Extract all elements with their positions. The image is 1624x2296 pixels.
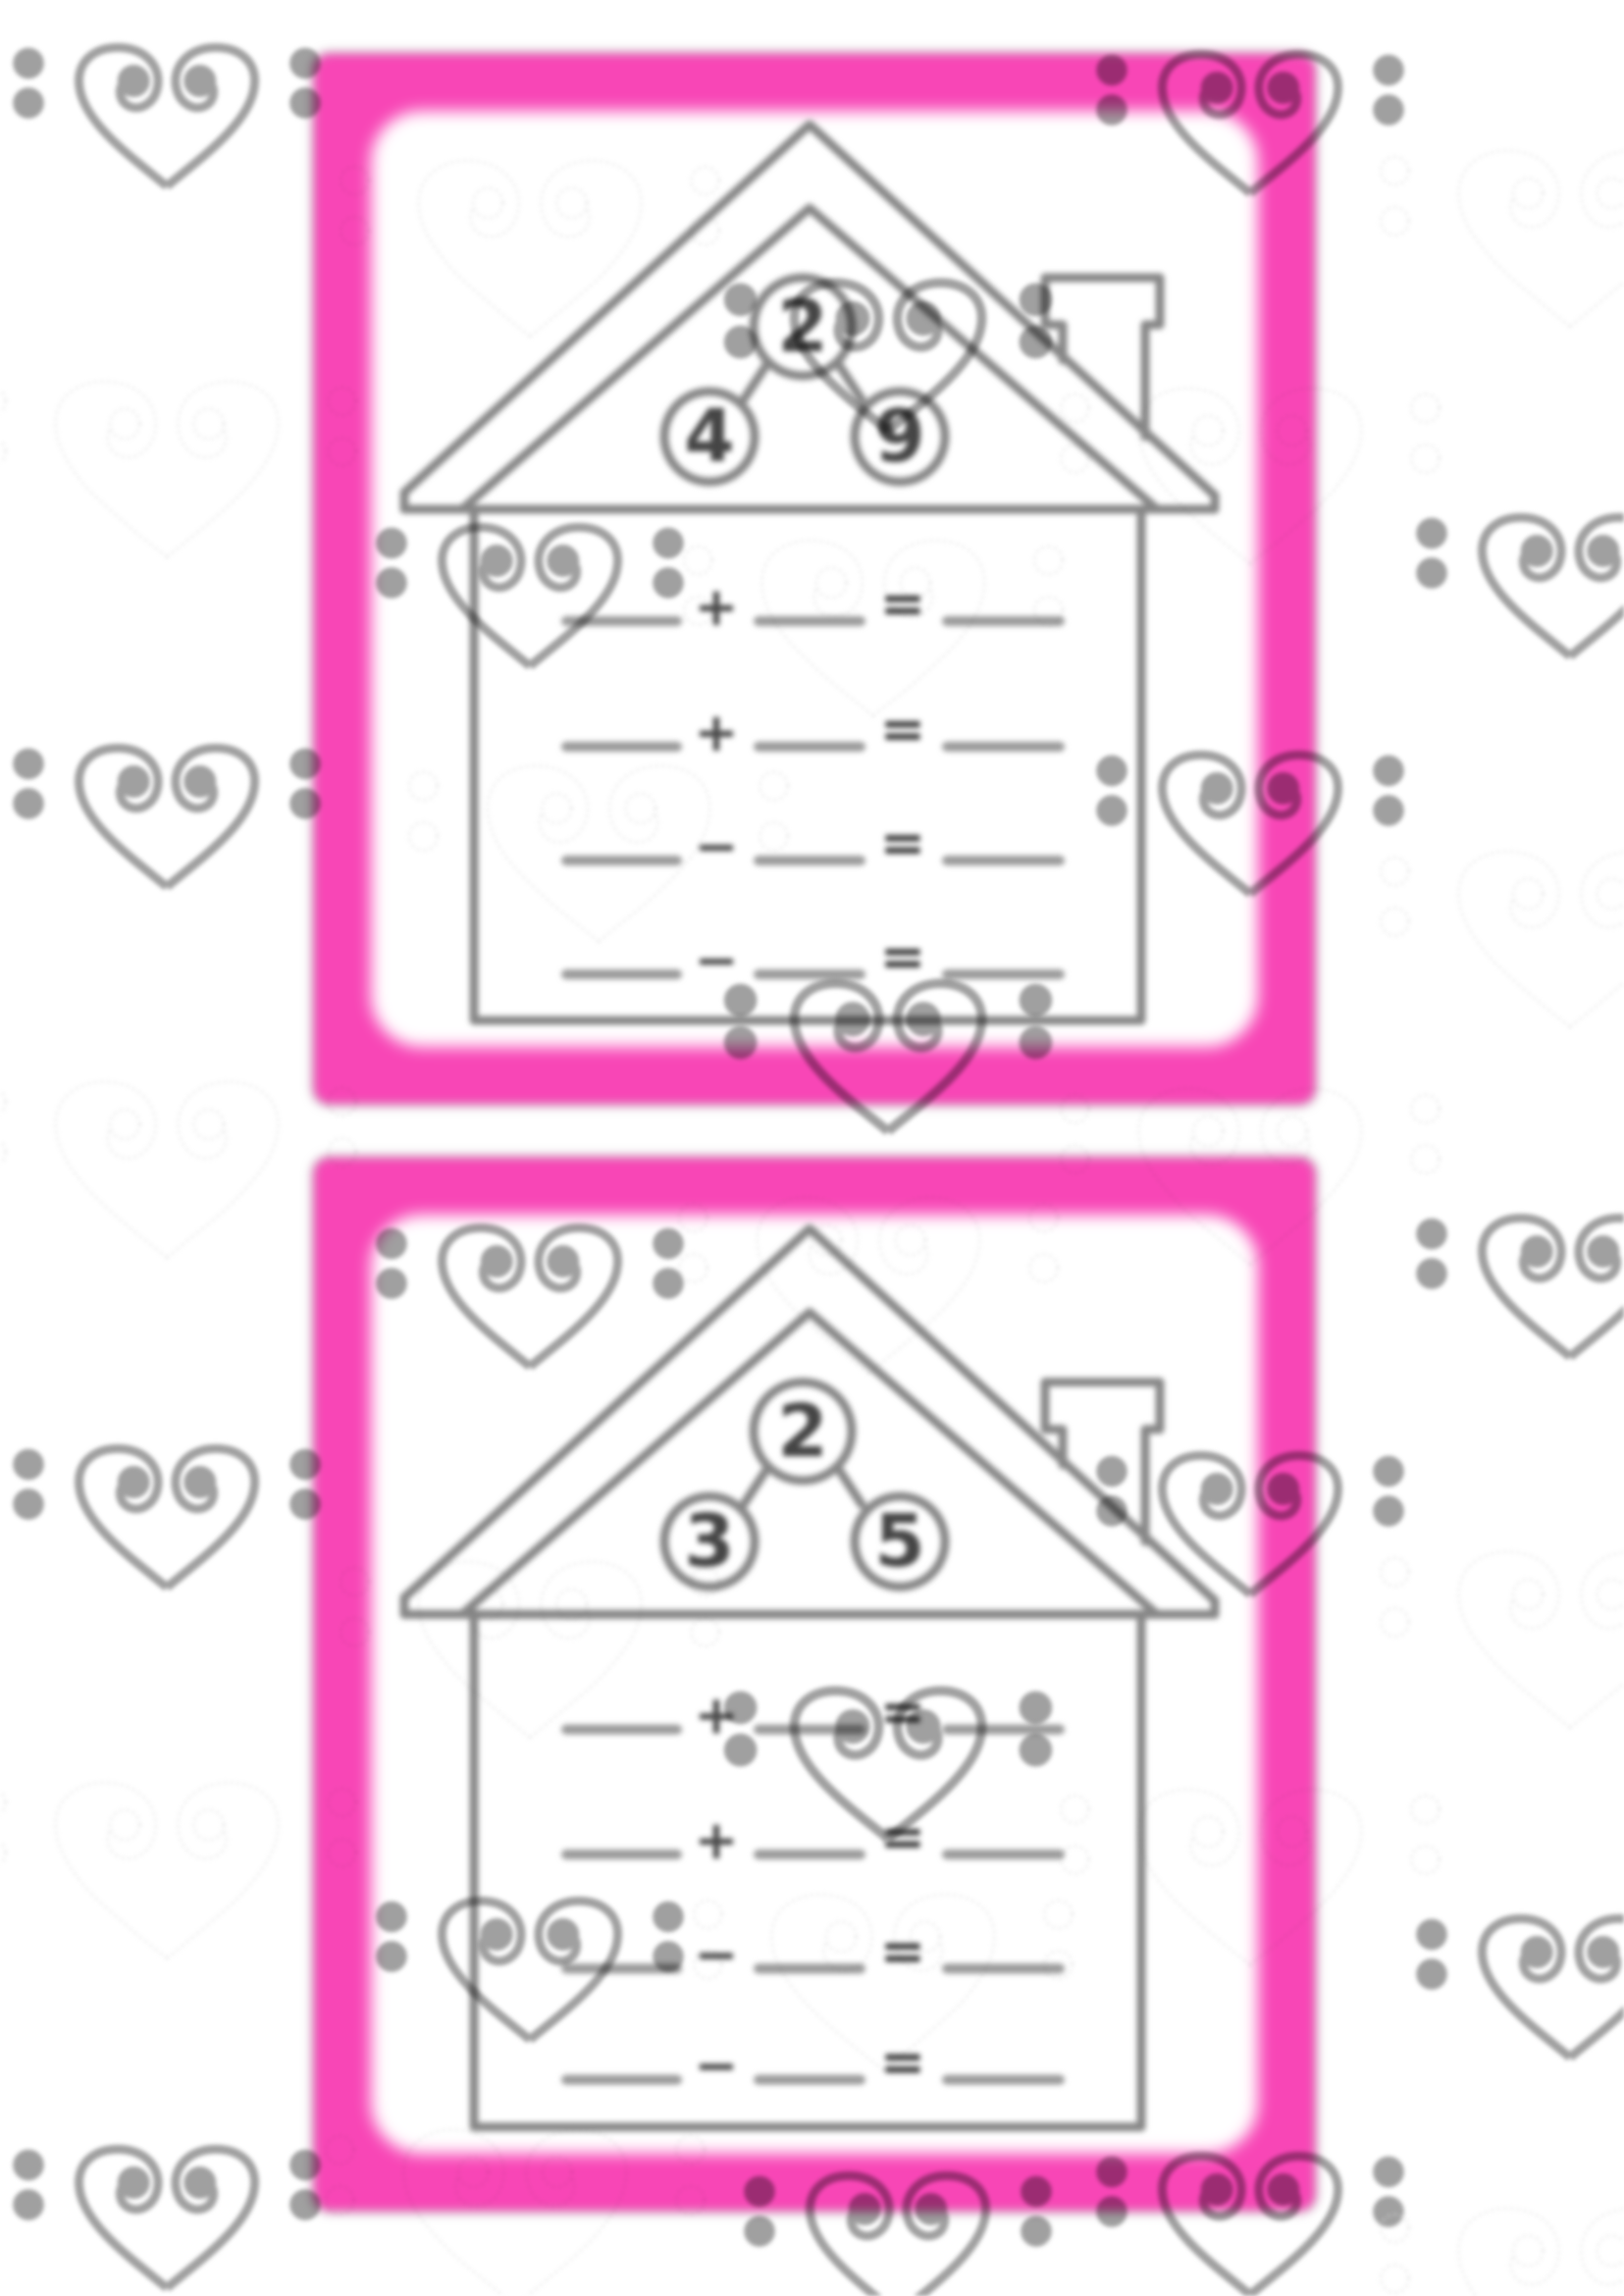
bass-clef-heart-icon [1421, 1218, 1624, 1356]
bond-left-number: 4 [684, 394, 735, 479]
operator-sign: + [694, 702, 738, 763]
bond-connector-left [744, 1467, 768, 1504]
bass-clef-heart-icon [18, 748, 317, 886]
bond-connector-right [837, 362, 862, 399]
bond-connector-left [744, 362, 768, 399]
equation-row: + = [566, 1805, 1060, 1871]
bond-right-number: 5 [874, 1499, 924, 1584]
equation-row: + = [566, 1681, 1060, 1747]
operator-sign: − [694, 1923, 738, 1985]
operator-sign: − [694, 2035, 738, 2097]
bass-clef-heart-icon [18, 1448, 317, 1587]
chimney-right-side [1145, 1430, 1160, 1541]
bass-clef-heart-outline-icon [0, 1783, 356, 1958]
bond-connector-right [837, 1467, 862, 1504]
equals-sign: = [880, 1681, 926, 1745]
equals-sign: = [880, 572, 926, 636]
bass-clef-heart-icon [1421, 517, 1624, 655]
bass-clef-heart-outline-icon [0, 382, 356, 557]
bond-top-number: 2 [777, 1389, 827, 1474]
operator-sign: + [694, 576, 738, 638]
bass-clef-heart-outline-icon [1381, 151, 1624, 327]
worksheet-page: 2 4 9 + = + = − = [0, 0, 1624, 2296]
bass-clef-heart-icon [18, 2149, 317, 2287]
chimney-cap [1045, 1383, 1160, 1430]
operator-sign: + [694, 1809, 738, 1871]
bass-clef-heart-icon [1421, 1918, 1624, 2057]
equals-sign: = [880, 811, 926, 875]
equation-row: − = [566, 925, 1060, 991]
bass-clef-heart-icon [18, 47, 317, 185]
equation-row: − = [566, 811, 1060, 877]
operator-sign: − [694, 815, 738, 877]
equals-sign: = [880, 925, 926, 989]
chimney-cap [1045, 278, 1160, 325]
worksheet-card-1: 2 4 9 + = + = − = [314, 54, 1315, 1104]
fact-family-house-figure: 2 3 5 + = + = − = [314, 1158, 1315, 2211]
bass-clef-heart-outline-icon [1381, 1552, 1624, 1728]
equation-row: + = [566, 698, 1060, 763]
equals-sign: = [880, 2031, 926, 2095]
house-body [474, 509, 1141, 1020]
worksheet-card-2: 2 3 5 + = + = − = [314, 1158, 1315, 2211]
fact-family-house-figure: 2 4 9 + = + = − = [314, 54, 1315, 1104]
bond-top-number: 2 [777, 285, 828, 369]
bond-right-number: 9 [874, 394, 925, 479]
equation-row: − = [566, 1919, 1060, 1985]
equals-sign: = [880, 1805, 926, 1869]
bond-left-number: 3 [684, 1499, 734, 1584]
equation-row: + = [566, 572, 1060, 638]
bass-clef-heart-outline-icon [1381, 852, 1624, 1027]
operator-sign: − [694, 929, 738, 991]
bass-clef-heart-outline-icon [0, 1082, 356, 1258]
house-body [474, 1614, 1141, 2126]
operator-sign: + [694, 1685, 738, 1747]
equals-sign: = [880, 1919, 926, 1983]
chimney-right-side [1145, 325, 1160, 437]
equation-row: − = [566, 2031, 1060, 2097]
bass-clef-heart-outline-icon [1381, 2209, 1624, 2296]
equals-sign: = [880, 698, 926, 761]
